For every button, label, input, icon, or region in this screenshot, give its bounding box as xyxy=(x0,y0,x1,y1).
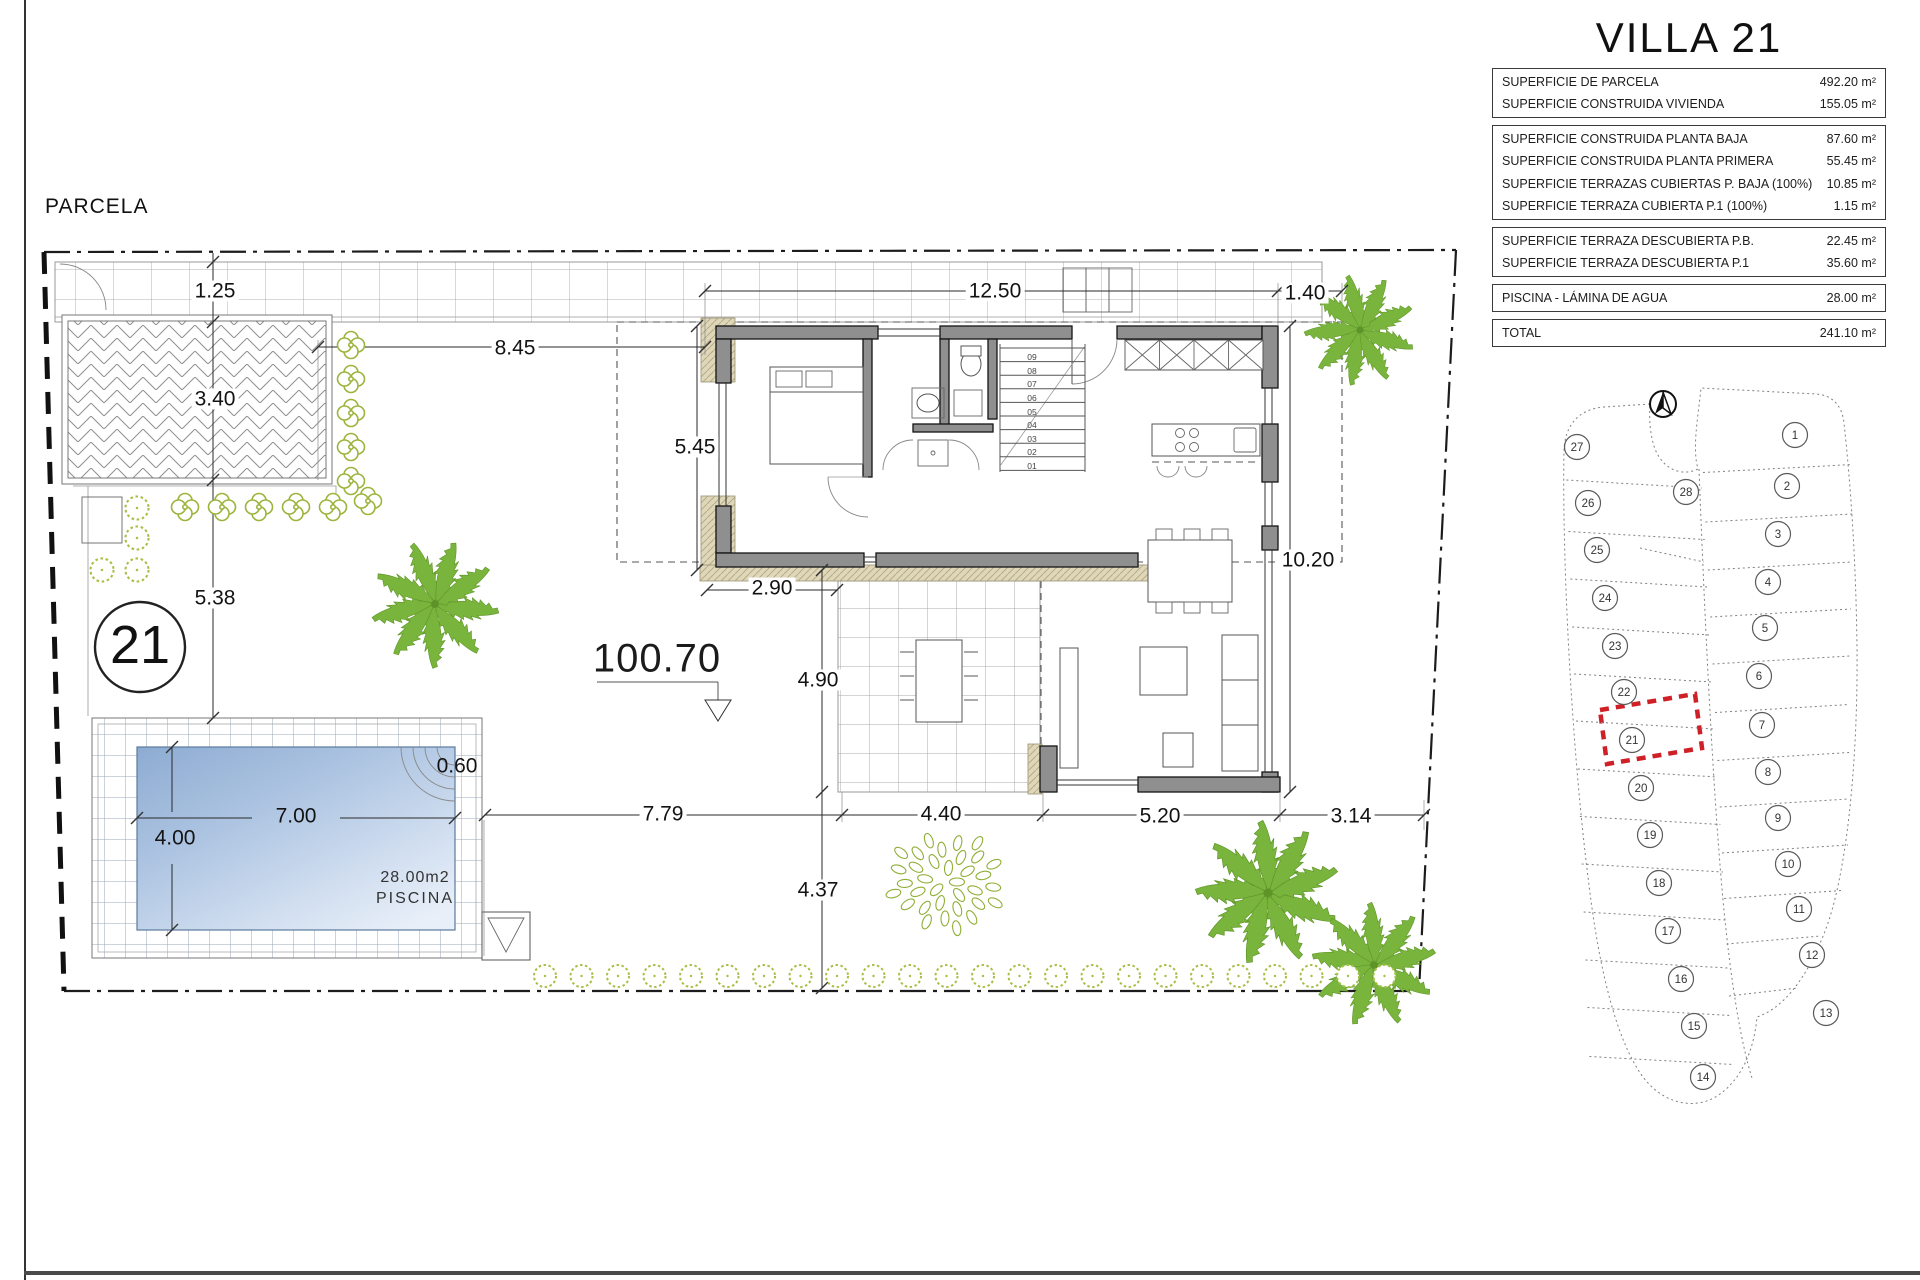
site-plot-number: 21 xyxy=(1626,735,1639,747)
dining-table xyxy=(1148,540,1232,602)
area-label: SUPERFICIE TERRAZA DESCUBIERTA P.B. xyxy=(1502,232,1754,250)
drawing-sheet: 1234567891011121314151617181920212223242… xyxy=(0,0,1920,1280)
site-plot-number: 28 xyxy=(1680,487,1693,499)
site-plot-number: 23 xyxy=(1609,641,1622,653)
area-value: 55.45 m² xyxy=(1827,152,1876,170)
area-table-row: SUPERFICIE CONSTRUIDA PLANTA PRIMERA55.4… xyxy=(1493,150,1885,172)
area-table-row: SUPERFICIE TERRAZA DESCUBIERTA P.135.60 … xyxy=(1493,252,1885,274)
site-plot-number: 6 xyxy=(1756,671,1762,683)
area-table-row: SUPERFICIE TERRAZAS CUBIERTAS P. BAJA (1… xyxy=(1493,173,1885,195)
site-plot-number: 9 xyxy=(1775,813,1781,825)
kitchen-island xyxy=(1152,424,1260,456)
site-plot-number: 16 xyxy=(1675,974,1688,986)
site-plot-number: 12 xyxy=(1806,950,1819,962)
area-value: 10.85 m² xyxy=(1827,175,1876,193)
area-table-group: TOTAL241.10 m² xyxy=(1492,319,1886,347)
site-plot-number: 14 xyxy=(1697,1072,1710,1084)
area-table-row: SUPERFICIE CONSTRUIDA VIVIENDA155.05 m² xyxy=(1493,93,1885,115)
driveway-paving xyxy=(68,321,326,478)
area-table-row: PISCINA - LÁMINA DE AGUA28.00 m² xyxy=(1493,287,1885,309)
boundary-top xyxy=(44,250,1456,252)
area-table-group: SUPERFICIE CONSTRUIDA PLANTA BAJA87.60 m… xyxy=(1492,125,1886,220)
area-label: SUPERFICIE TERRAZA DESCUBIERTA P.1 xyxy=(1502,254,1749,272)
coffee-table xyxy=(1140,647,1187,695)
area-table-row: TOTAL241.10 m² xyxy=(1493,322,1885,344)
site-plot-number: 18 xyxy=(1653,878,1666,890)
site-plot-number: 24 xyxy=(1599,593,1612,605)
site-plot-number: 8 xyxy=(1765,767,1771,779)
level-marker xyxy=(597,682,731,721)
area-value: 28.00 m² xyxy=(1827,289,1876,307)
site-location-map xyxy=(1564,388,1857,1103)
site-plot-number: 26 xyxy=(1582,498,1595,510)
surface-area-table: SUPERFICIE DE PARCELA492.20 m²SUPERFICIE… xyxy=(1492,68,1886,354)
area-value: 241.10 m² xyxy=(1820,324,1876,342)
area-table-group: SUPERFICIE DE PARCELA492.20 m²SUPERFICIE… xyxy=(1492,68,1886,118)
area-label: PISCINA - LÁMINA DE AGUA xyxy=(1502,289,1667,307)
site-plot-number: 2 xyxy=(1784,481,1790,493)
site-plot-number: 4 xyxy=(1765,577,1772,589)
highlighted-plot-21 xyxy=(1600,694,1702,764)
area-label: SUPERFICIE DE PARCELA xyxy=(1502,73,1659,91)
villa-title: VILLA 21 xyxy=(1492,14,1886,62)
area-value: 35.60 m² xyxy=(1827,254,1876,272)
area-label: SUPERFICIE CONSTRUIDA PLANTA PRIMERA xyxy=(1502,152,1773,170)
site-plot-number: 3 xyxy=(1775,529,1781,541)
site-plot-number: 11 xyxy=(1793,904,1805,916)
site-plot-number: 10 xyxy=(1782,859,1795,871)
north-arrow-icon xyxy=(1650,391,1676,417)
site-plot-number: 19 xyxy=(1644,830,1657,842)
site-plot-number: 27 xyxy=(1571,442,1584,454)
site-plot-number: 17 xyxy=(1662,926,1675,938)
area-value: 1.15 m² xyxy=(1834,197,1876,215)
shower-tray xyxy=(918,440,948,466)
terrace-table xyxy=(916,640,962,722)
site-plot-number: 25 xyxy=(1591,545,1604,557)
site-plot-number: 5 xyxy=(1762,623,1768,635)
area-label: SUPERFICIE TERRAZA CUBIERTA P.1 (100%) xyxy=(1502,197,1767,215)
area-table-group: SUPERFICIE TERRAZA DESCUBIERTA P.B.22.45… xyxy=(1492,227,1886,277)
area-label: SUPERFICIE CONSTRUIDA PLANTA BAJA xyxy=(1502,130,1748,148)
area-label: TOTAL xyxy=(1502,324,1541,342)
site-plot-number: 1 xyxy=(1792,430,1798,442)
area-table-row: SUPERFICIE TERRAZA DESCUBIERTA P.B.22.45… xyxy=(1493,230,1885,252)
bed xyxy=(770,367,863,464)
area-value: 22.45 m² xyxy=(1827,232,1876,250)
site-plot-number: 13 xyxy=(1820,1008,1833,1020)
area-value: 87.60 m² xyxy=(1827,130,1876,148)
area-label: SUPERFICIE CONSTRUIDA VIVIENDA xyxy=(1502,95,1724,113)
area-table-row: SUPERFICIE TERRAZA CUBIERTA P.1 (100%)1.… xyxy=(1493,195,1885,217)
tv-unit xyxy=(1060,648,1078,768)
area-label: SUPERFICIE TERRAZAS CUBIERTAS P. BAJA (1… xyxy=(1502,175,1812,193)
area-table-row: SUPERFICIE DE PARCELA492.20 m² xyxy=(1493,71,1885,93)
site-plot-number: 15 xyxy=(1688,1021,1701,1033)
site-plot-number: 7 xyxy=(1759,720,1765,732)
washbasin xyxy=(917,394,939,412)
site-plot-number: 20 xyxy=(1635,783,1648,795)
boundary-right xyxy=(1419,250,1456,991)
area-table-group: PISCINA - LÁMINA DE AGUA28.00 m² xyxy=(1492,284,1886,312)
area-value: 155.05 m² xyxy=(1820,95,1876,113)
area-table-row: SUPERFICIE CONSTRUIDA PLANTA BAJA87.60 m… xyxy=(1493,128,1885,150)
boundary-left xyxy=(44,252,64,991)
site-plot-number: 22 xyxy=(1618,687,1631,699)
sofa xyxy=(1222,635,1258,771)
area-value: 492.20 m² xyxy=(1820,73,1876,91)
swimming-pool xyxy=(137,747,455,930)
plot-number-circle xyxy=(95,602,185,692)
